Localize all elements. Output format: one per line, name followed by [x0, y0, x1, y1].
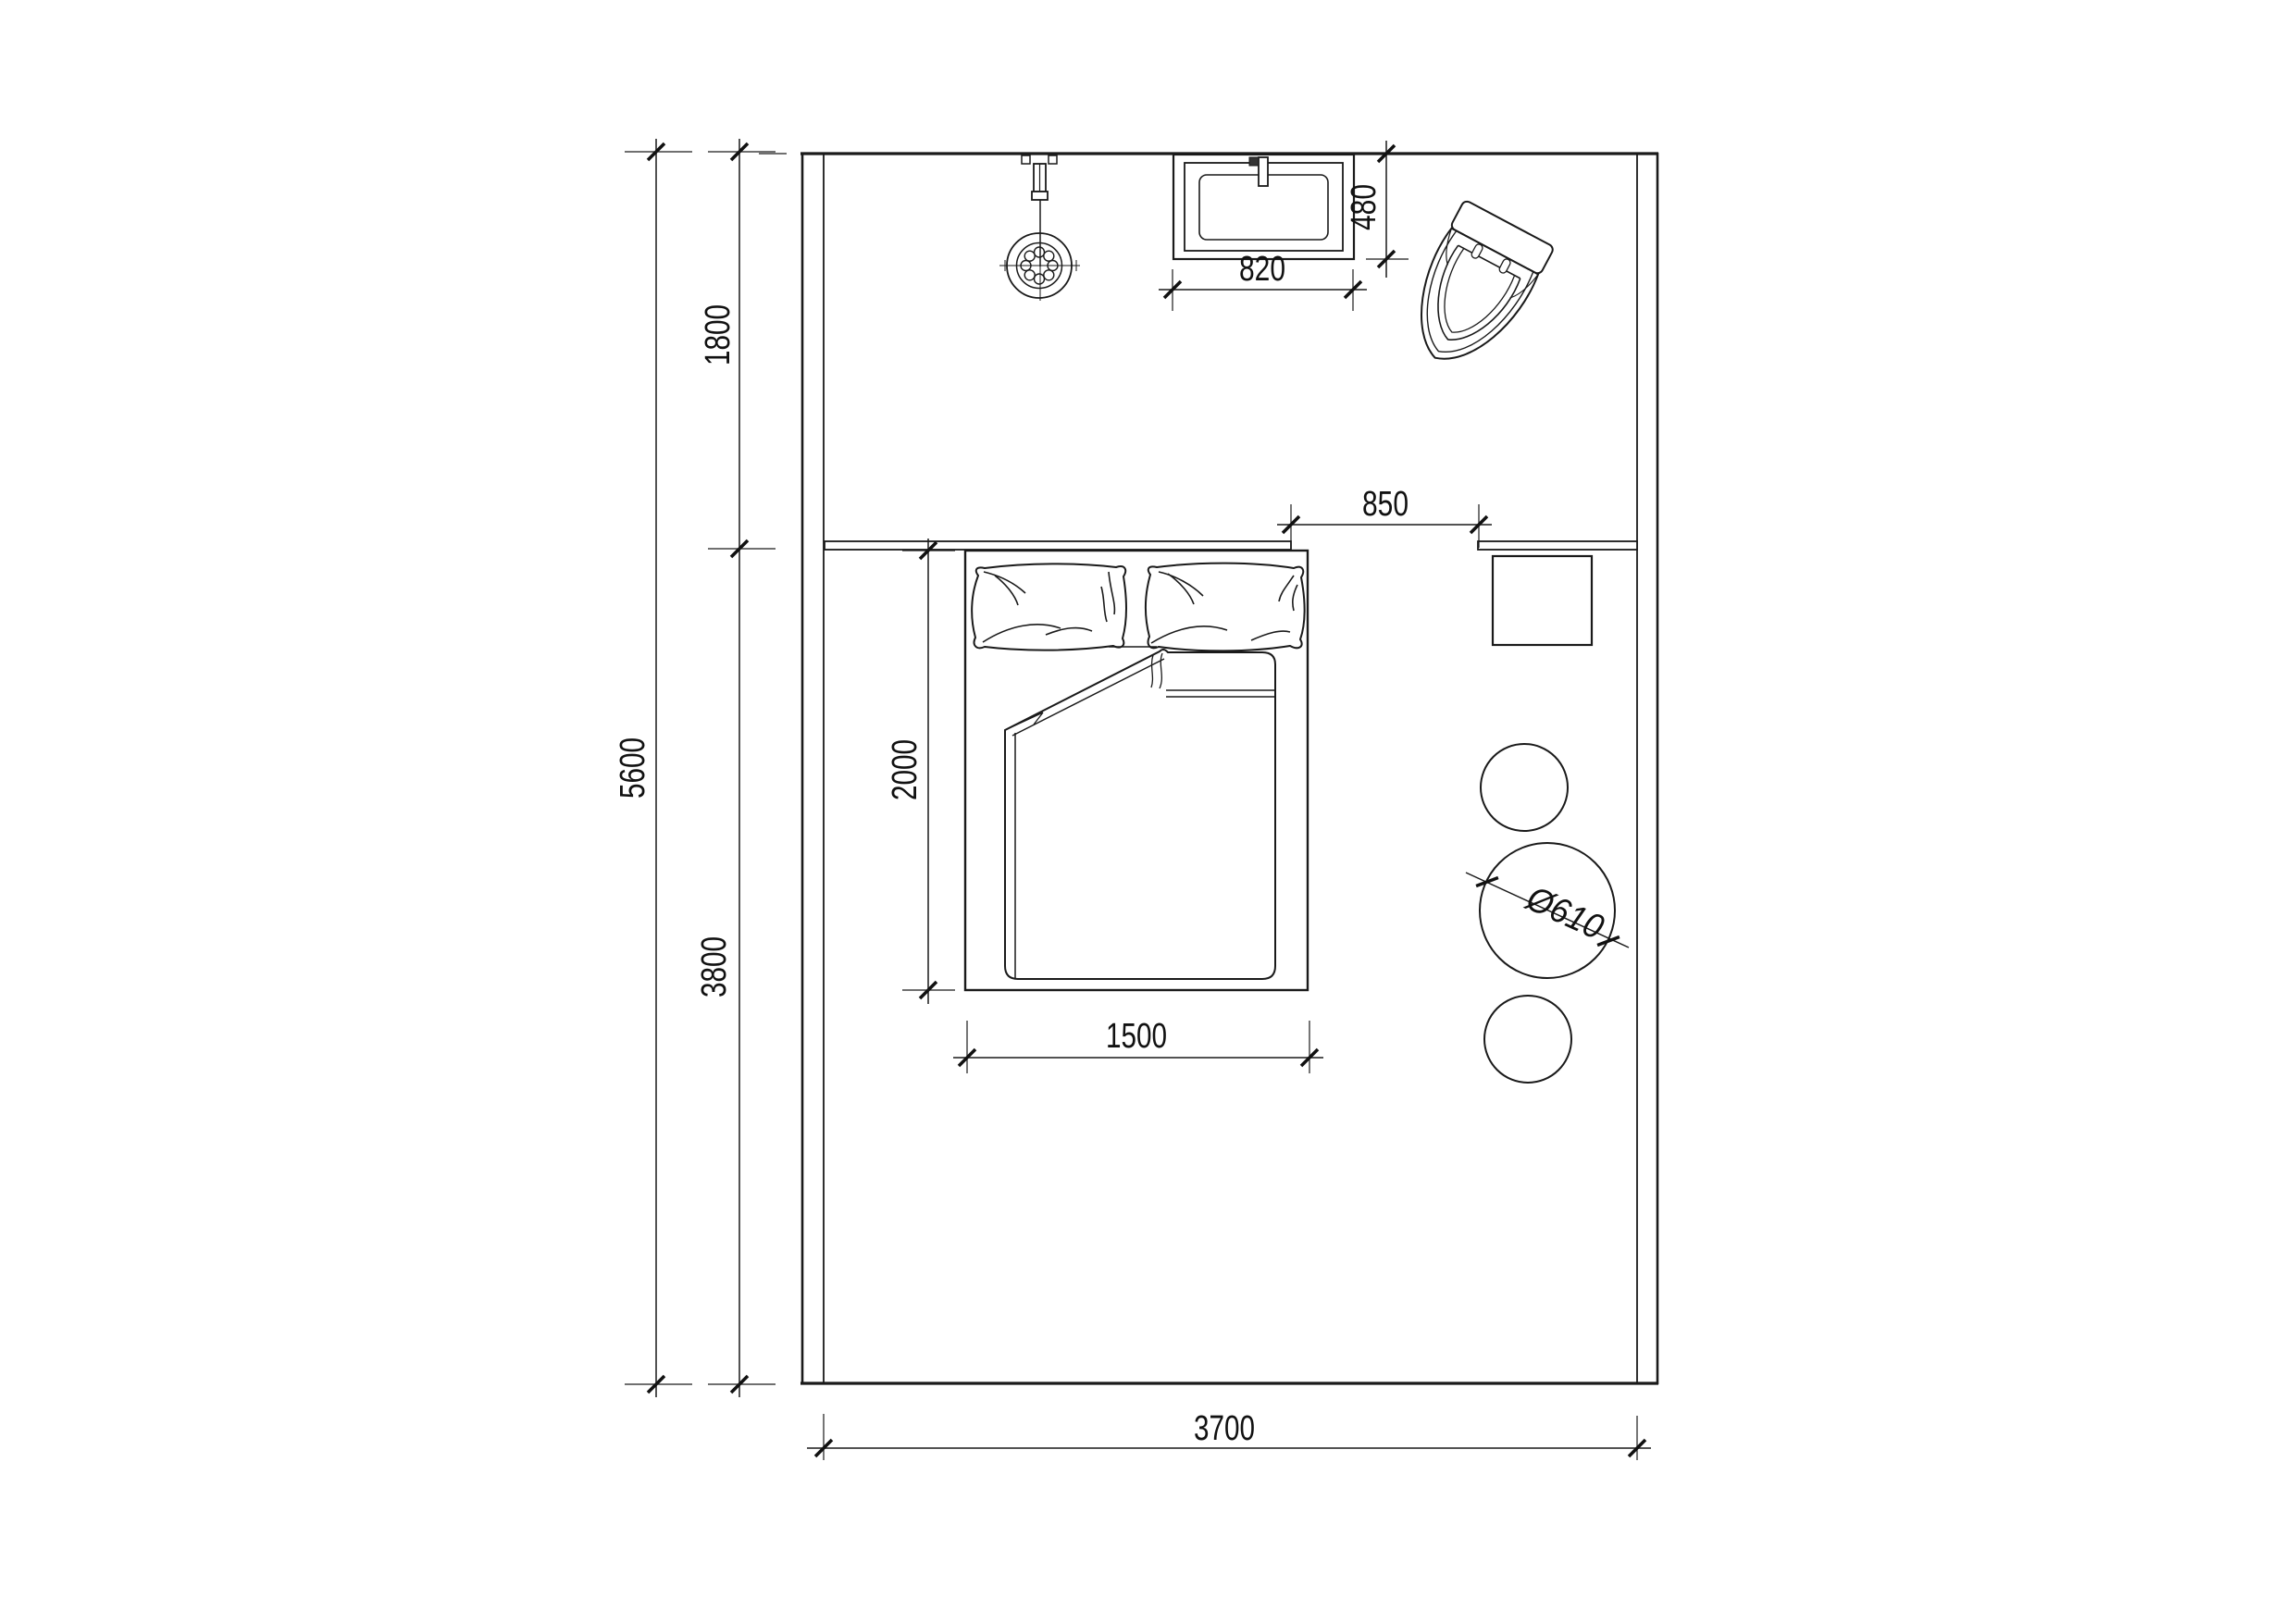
dim-passage-850: 850	[1277, 485, 1492, 548]
dim-room-width-3700: 3700	[807, 1409, 1651, 1460]
stool-small-bottom	[1484, 996, 1571, 1083]
stool-small-top	[1481, 744, 1568, 831]
dim-label-bath-zone: 1800	[699, 304, 738, 365]
dim-room-height-5600: 5600	[614, 139, 692, 1397]
basin-faucet-handle	[1249, 157, 1259, 166]
shower-mount-lug-left	[1022, 155, 1030, 164]
dim-label-bedroom-zone: 3800	[695, 936, 734, 997]
dim-label-bed-width: 1500	[1106, 1017, 1167, 1056]
double-bed-symbol	[965, 551, 1308, 990]
dim-label-room-height: 5600	[614, 737, 652, 799]
floor-plan-page: 5600 1800 3800 3700 2000 150	[0, 0, 2296, 1623]
dim-zones-1800-3800: 1800 3800	[695, 139, 787, 1397]
pillow-right	[1146, 564, 1305, 651]
shower-head-symbol	[999, 155, 1080, 301]
floor-plan-canvas: 5600 1800 3800 3700 2000 150	[0, 0, 2296, 1623]
dim-bed-length-2000: 2000	[886, 539, 955, 1004]
dim-label-basin-depth: 480	[1345, 184, 1384, 230]
shower-centerlines	[999, 230, 1080, 301]
toilet-symbol	[1393, 200, 1555, 383]
basin-faucet	[1259, 157, 1268, 186]
ledge-right-segment	[1478, 541, 1637, 550]
shower-mount-lug-right	[1049, 155, 1057, 164]
dim-label-passage: 850	[1362, 485, 1409, 524]
dim-label-basin-width: 820	[1239, 250, 1285, 289]
ledge-left-segment	[825, 541, 1291, 550]
pillow-left	[972, 564, 1126, 650]
square-wash-basin-symbol	[1173, 155, 1354, 259]
bedside-table-symbol	[1493, 556, 1592, 645]
shower-arm-joint	[1032, 192, 1048, 200]
dim-bed-width-1500: 1500	[953, 1017, 1323, 1073]
ledge-partition	[825, 541, 1637, 550]
dim-label-bed-length: 2000	[886, 739, 925, 800]
dim-label-room-width: 3700	[1194, 1409, 1255, 1448]
